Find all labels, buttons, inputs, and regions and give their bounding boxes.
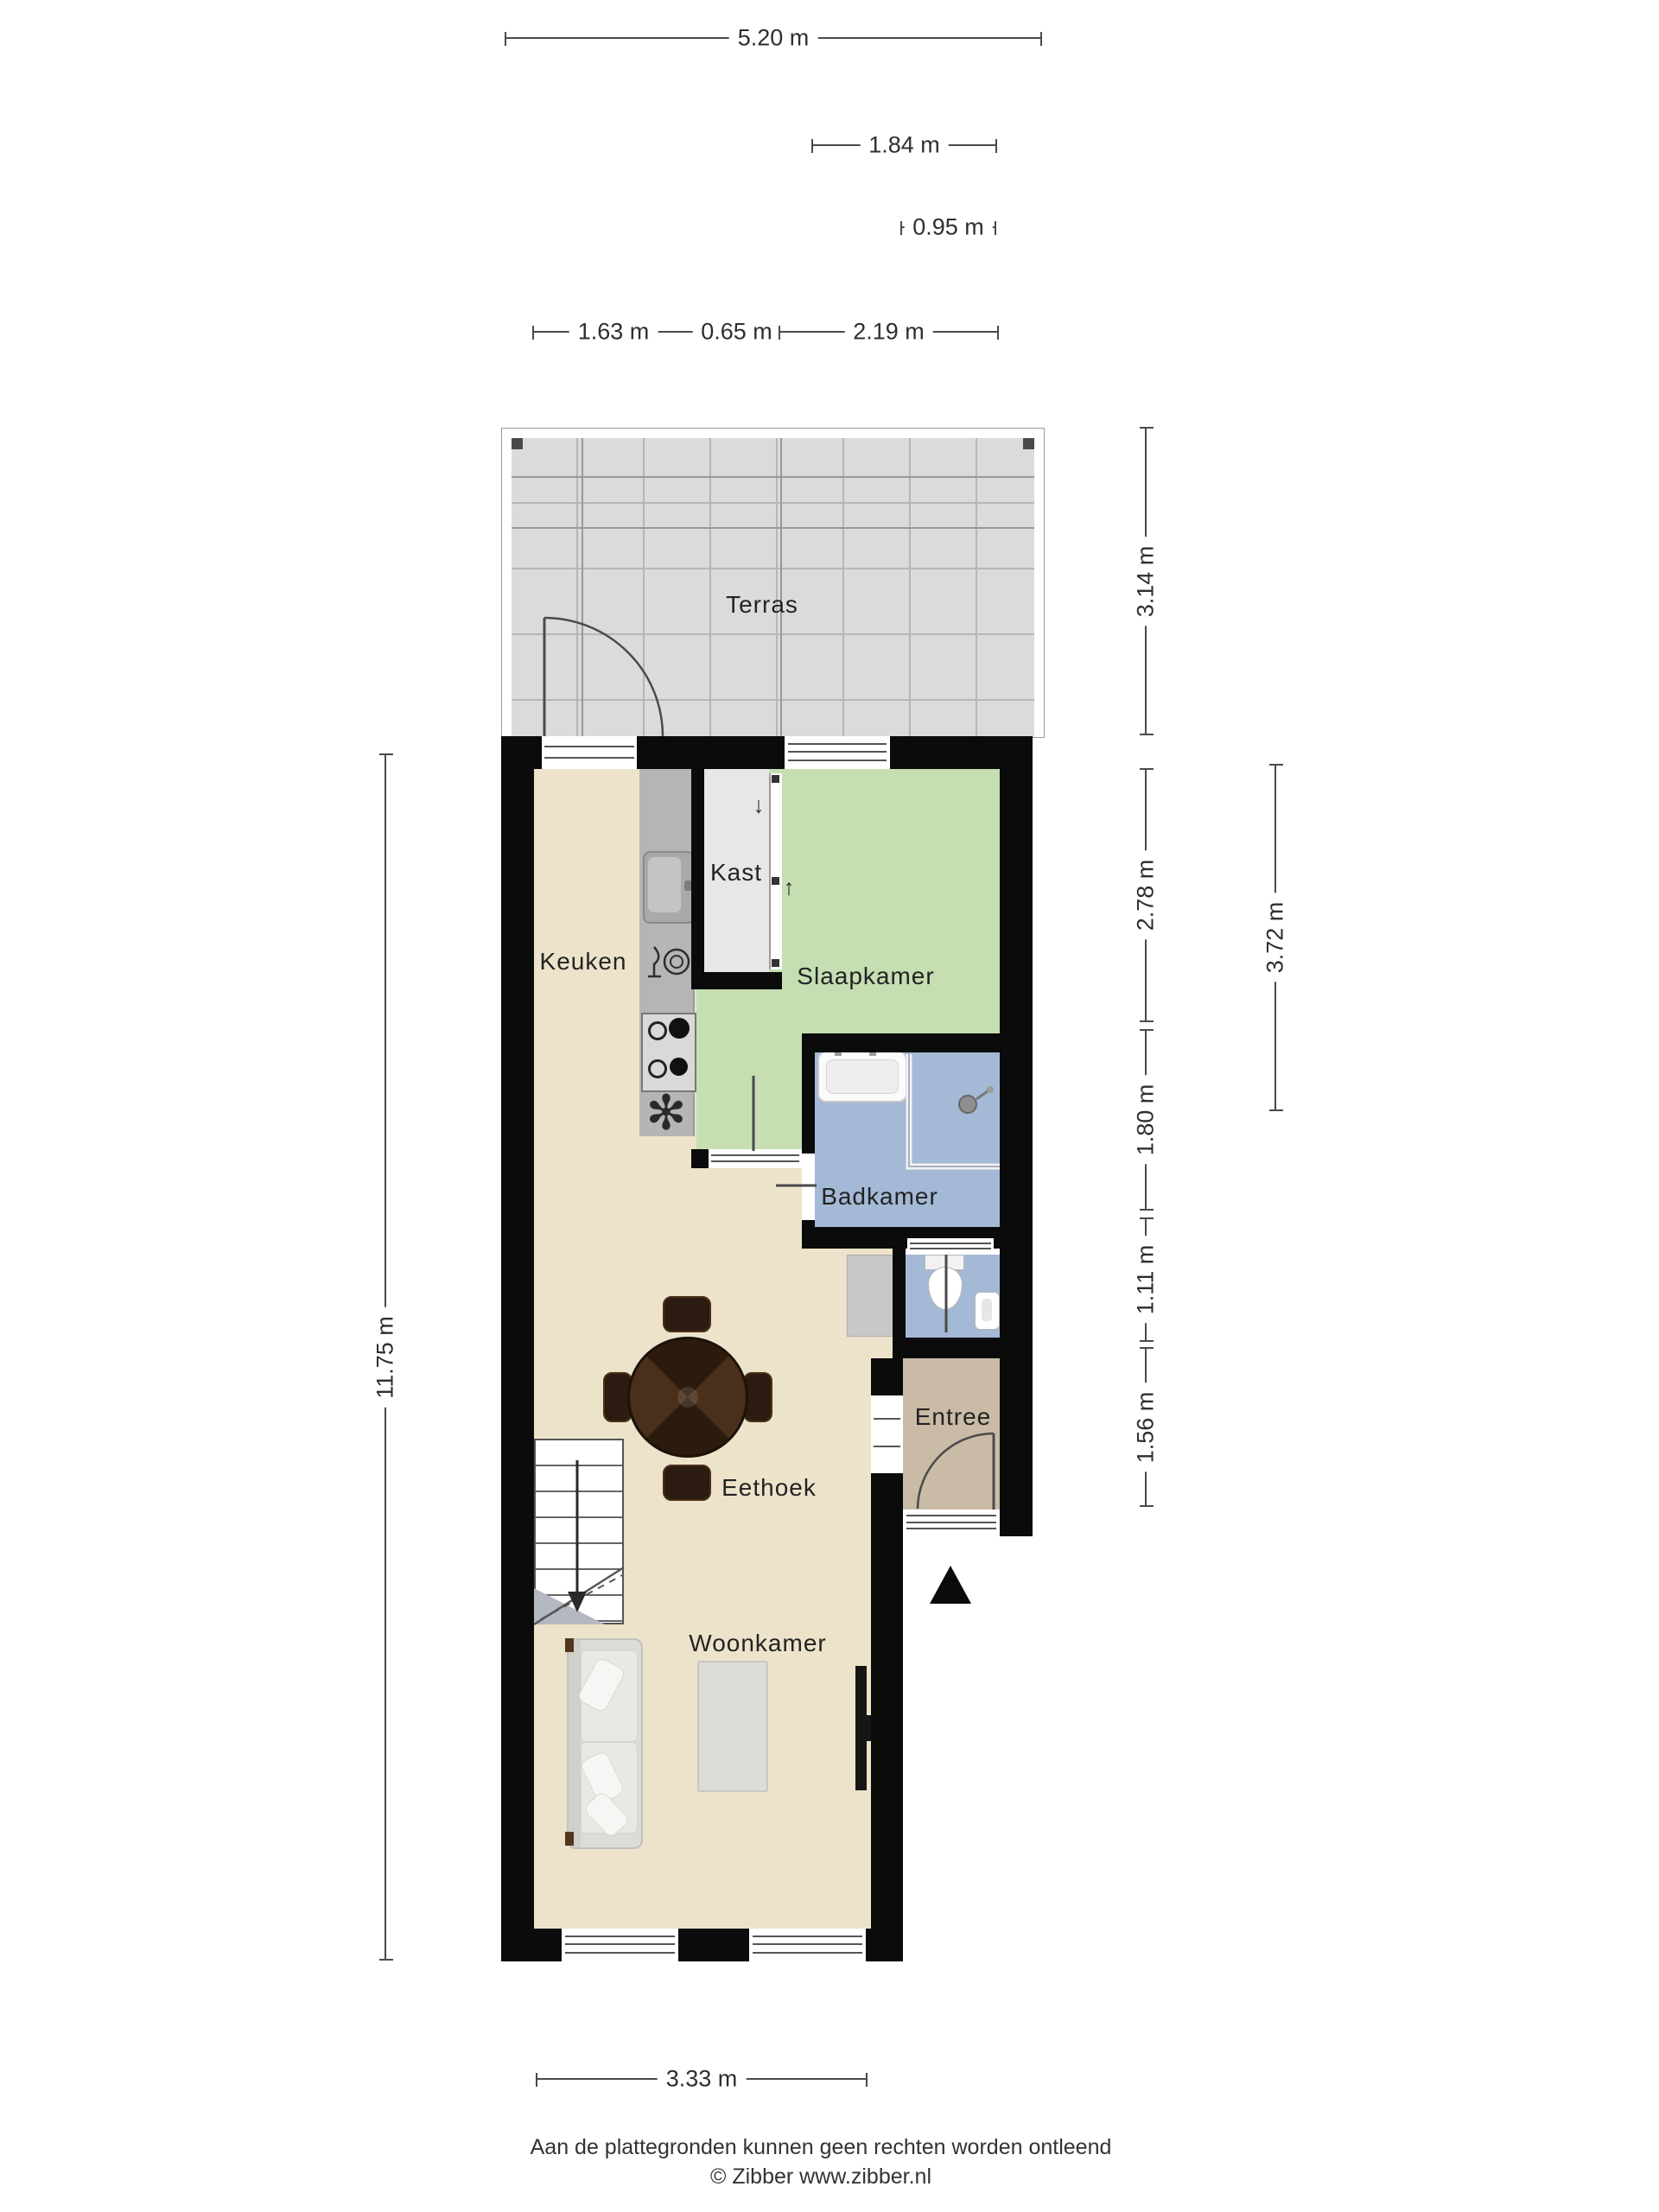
dishwasher-plate-icon	[671, 956, 683, 968]
shower-enclosure-line	[909, 1054, 1000, 1166]
dishwasher-glass-icon	[648, 947, 661, 976]
shower-hose-icon	[976, 1091, 988, 1099]
shower-enclosure	[909, 1054, 1000, 1166]
footer: Aan de plattegronden kunnen geen rechten…	[531, 2133, 1112, 2191]
floor-plan: 5.20 m 1.84 m 0.95 m 1.63 m 0.65 m 2.19 …	[0, 0, 1659, 2212]
footer-copyright: © Zibber www.zibber.nl	[531, 2162, 1112, 2191]
footer-disclaimer: Aan de plattegronden kunnen geen rechten…	[531, 2133, 1112, 2162]
room-label-badkamer: Badkamer	[821, 1183, 938, 1211]
room-label-entree: Entree	[915, 1403, 992, 1431]
room-label-woonkamer: Woonkamer	[689, 1630, 826, 1657]
terrace-door-arc	[544, 618, 663, 736]
room-label-terras: Terras	[726, 591, 798, 619]
room-label-eethoek: Eethoek	[721, 1474, 817, 1502]
front-door-arc	[918, 1433, 994, 1509]
shower-knob-icon	[987, 1086, 994, 1093]
room-label-kast: Kast	[710, 859, 762, 887]
shower-head-icon	[959, 1096, 976, 1113]
dishwasher-plate-icon	[664, 950, 689, 974]
room-label-keuken: Keuken	[540, 948, 627, 976]
plan-linework	[0, 0, 1659, 2212]
room-label-slaapkamer: Slaapkamer	[797, 963, 934, 990]
